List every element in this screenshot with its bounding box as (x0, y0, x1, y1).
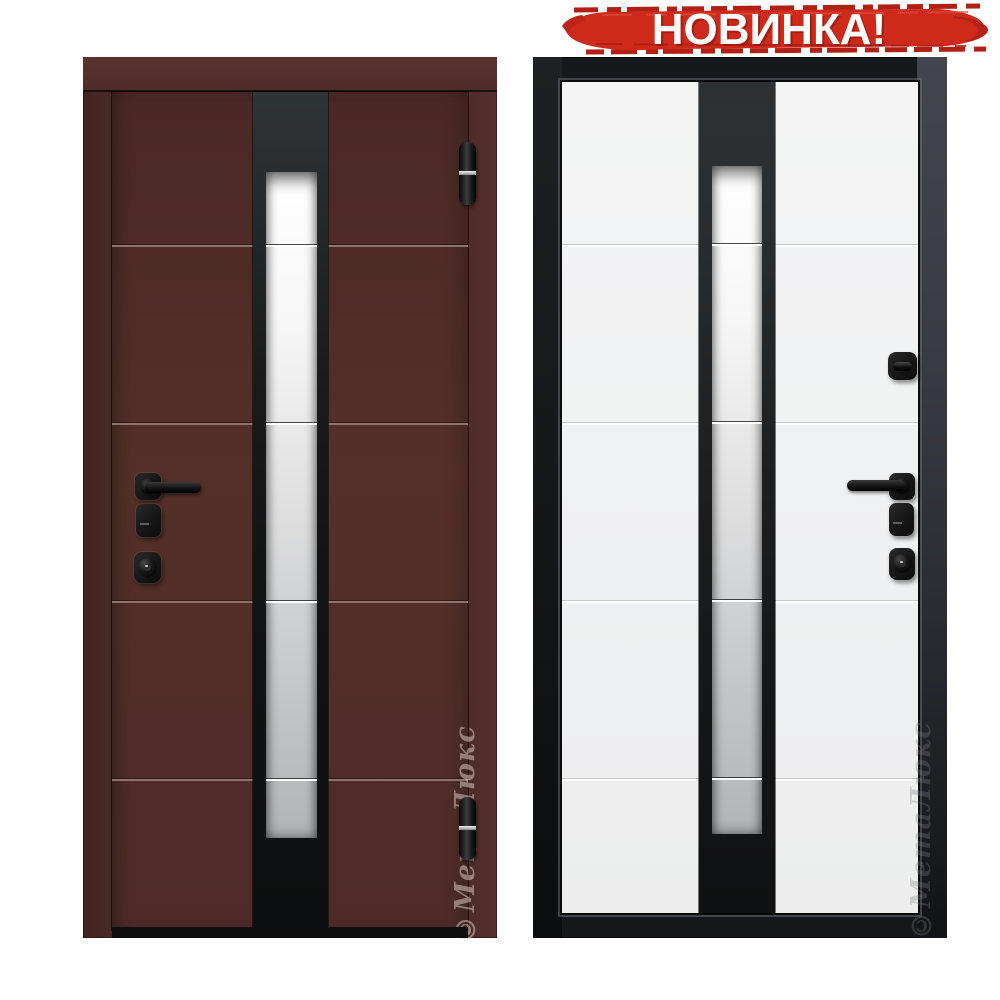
glass-divider (712, 421, 762, 424)
door-interior-view: ©МетаЛюкс (533, 57, 947, 938)
hinge-top (459, 142, 476, 205)
glass-divider (712, 599, 762, 602)
glass-divider (712, 777, 762, 780)
glass-divider (712, 243, 762, 246)
thumbturn-knob (893, 362, 912, 371)
glazing-strip (253, 92, 328, 930)
glass-divider (266, 600, 317, 603)
new-badge: НОВИНКА! (556, 2, 992, 58)
new-badge-label: НОВИНКА! (584, 8, 954, 52)
glass-pane (712, 166, 762, 834)
glass-divider (266, 778, 317, 781)
brand-watermark: ©МетаЛюкс (906, 798, 942, 940)
lock-escutcheon (136, 504, 161, 537)
door-handle-lever (847, 480, 905, 491)
door-leaf: ©МетаЛюкс (112, 92, 468, 930)
cylinder-lock-plate (134, 552, 161, 583)
door-panel: ©МетаЛюкс (562, 82, 918, 913)
door-sill (112, 927, 468, 938)
deadbolt-thumbturn-plate (888, 352, 917, 380)
glass-divider (266, 244, 317, 247)
lock-escutcheon (889, 503, 914, 536)
hinge-band (459, 826, 476, 830)
door-frame-top-bar (83, 57, 497, 92)
lock-brand-mark (893, 522, 902, 524)
glazing-strip (699, 82, 775, 913)
glass-divider (266, 422, 317, 425)
glass-pane (266, 172, 317, 838)
keyhole (899, 560, 906, 567)
hinge-band (459, 171, 476, 175)
lock-brand-mark (140, 523, 149, 525)
door-handle-lever (145, 482, 201, 493)
keyhole (144, 564, 151, 571)
keyhole-plate (889, 548, 915, 580)
hinge-bottom (459, 797, 476, 860)
door-exterior-view: ©МетаЛюкс (83, 57, 497, 938)
door-frame-left-edge (533, 57, 562, 938)
